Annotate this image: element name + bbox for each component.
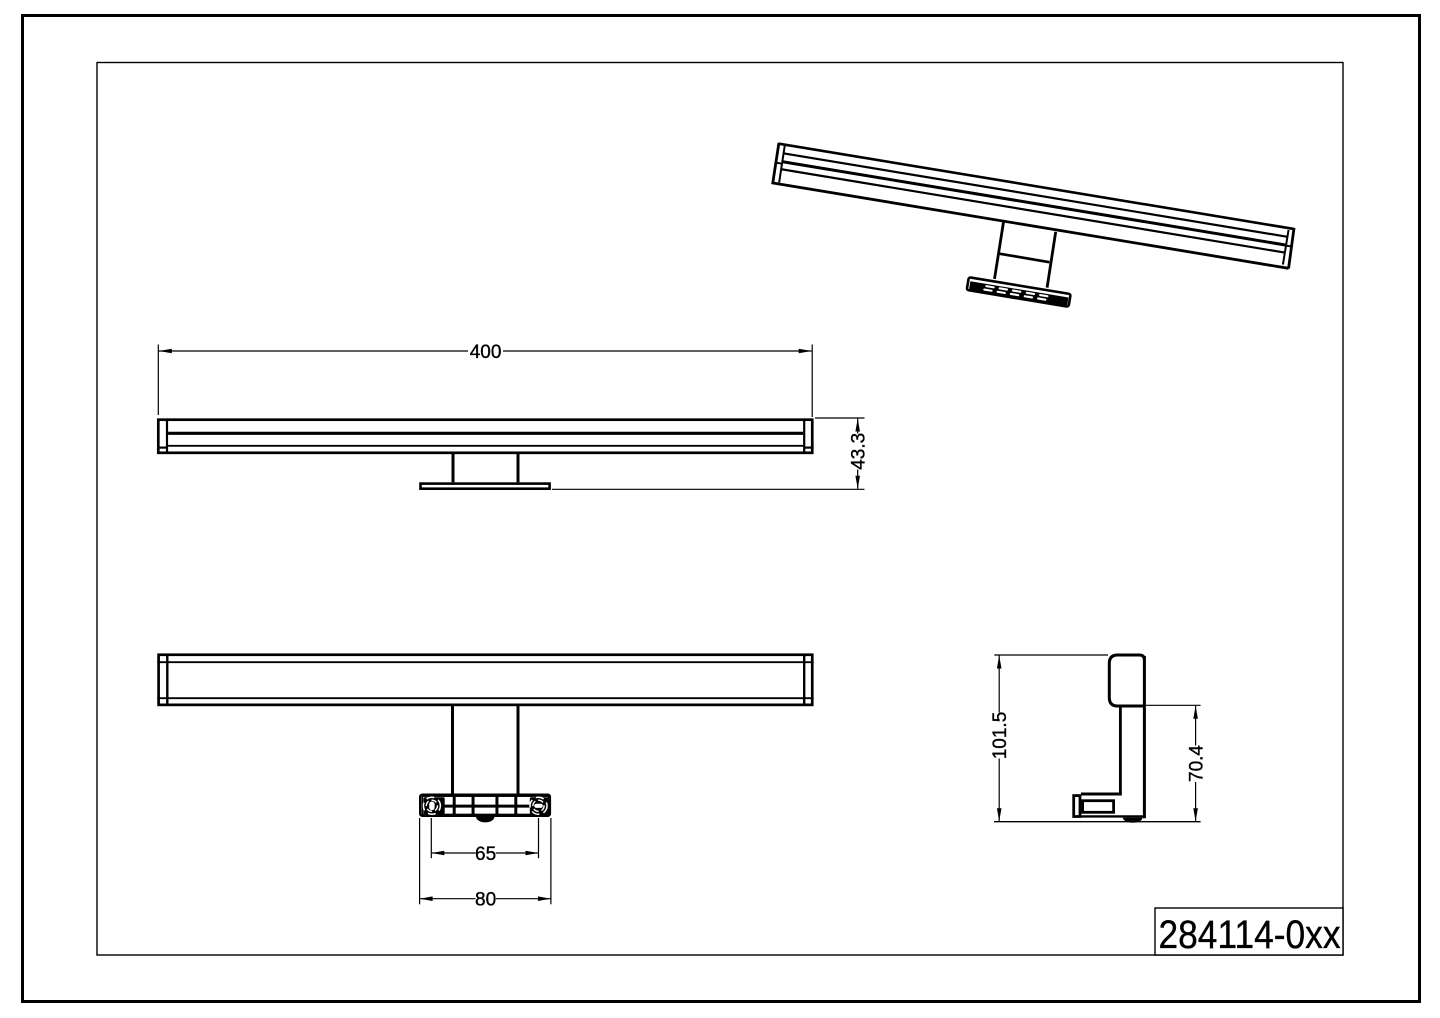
svg-text:80: 80 <box>475 890 496 911</box>
svg-text:43.3: 43.3 <box>849 433 870 470</box>
svg-text:400: 400 <box>470 342 502 363</box>
svg-text:284114-0xx: 284114-0xx <box>1159 913 1341 957</box>
svg-text:101.5: 101.5 <box>990 712 1011 760</box>
svg-text:65: 65 <box>475 844 496 865</box>
svg-text:70.4: 70.4 <box>1186 745 1207 782</box>
